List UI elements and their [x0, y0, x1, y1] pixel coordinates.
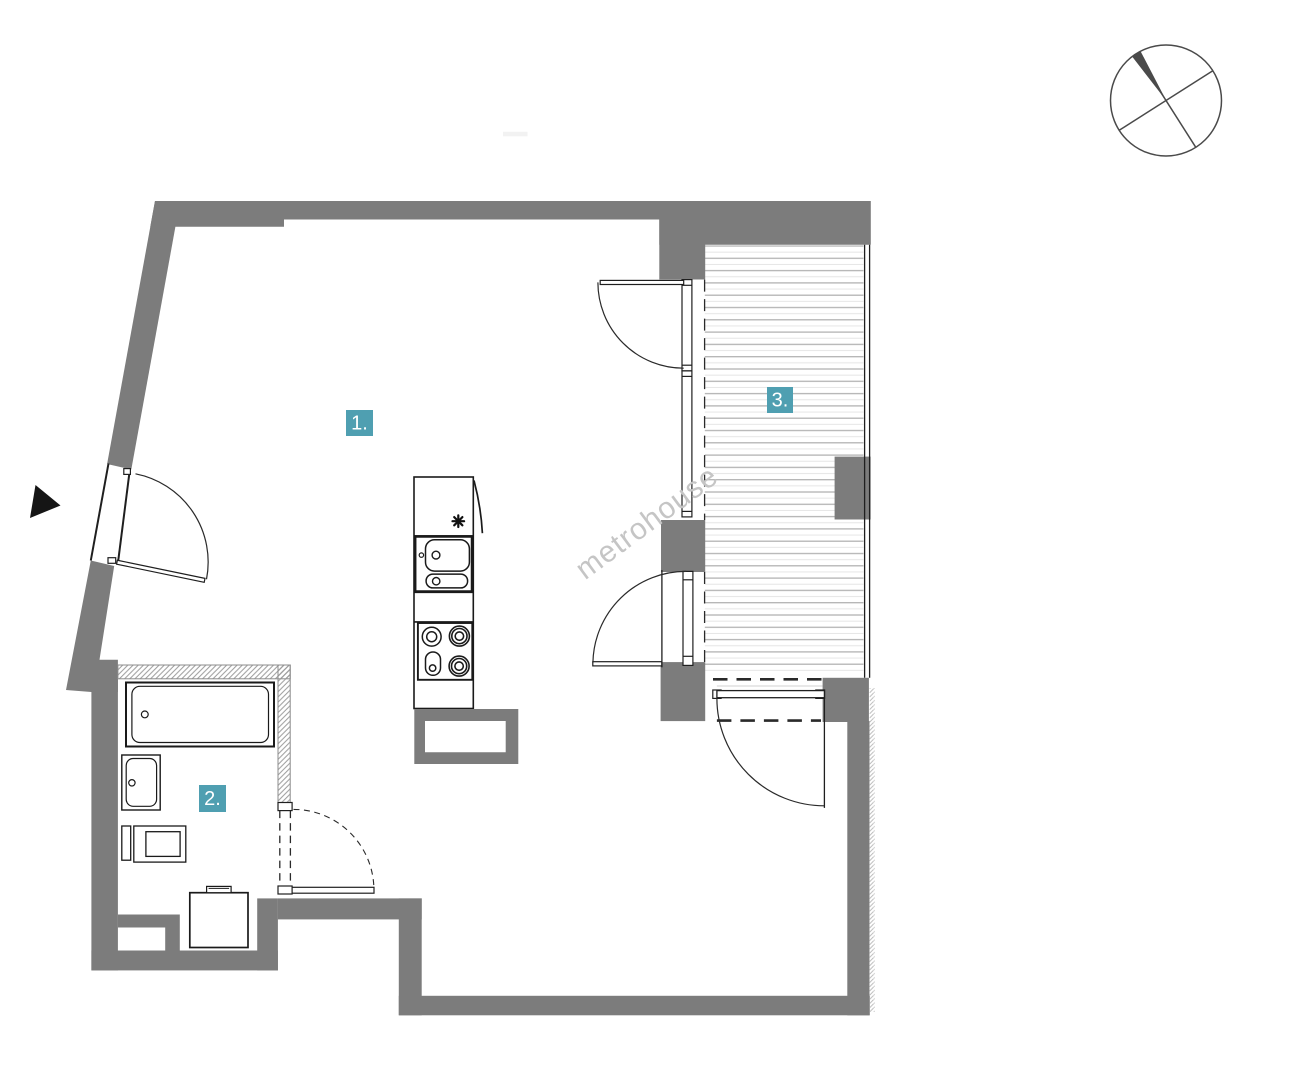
svg-text:3.: 3. — [772, 390, 789, 412]
svg-text:1.: 1. — [351, 413, 368, 435]
svg-text:2.: 2. — [204, 788, 221, 810]
